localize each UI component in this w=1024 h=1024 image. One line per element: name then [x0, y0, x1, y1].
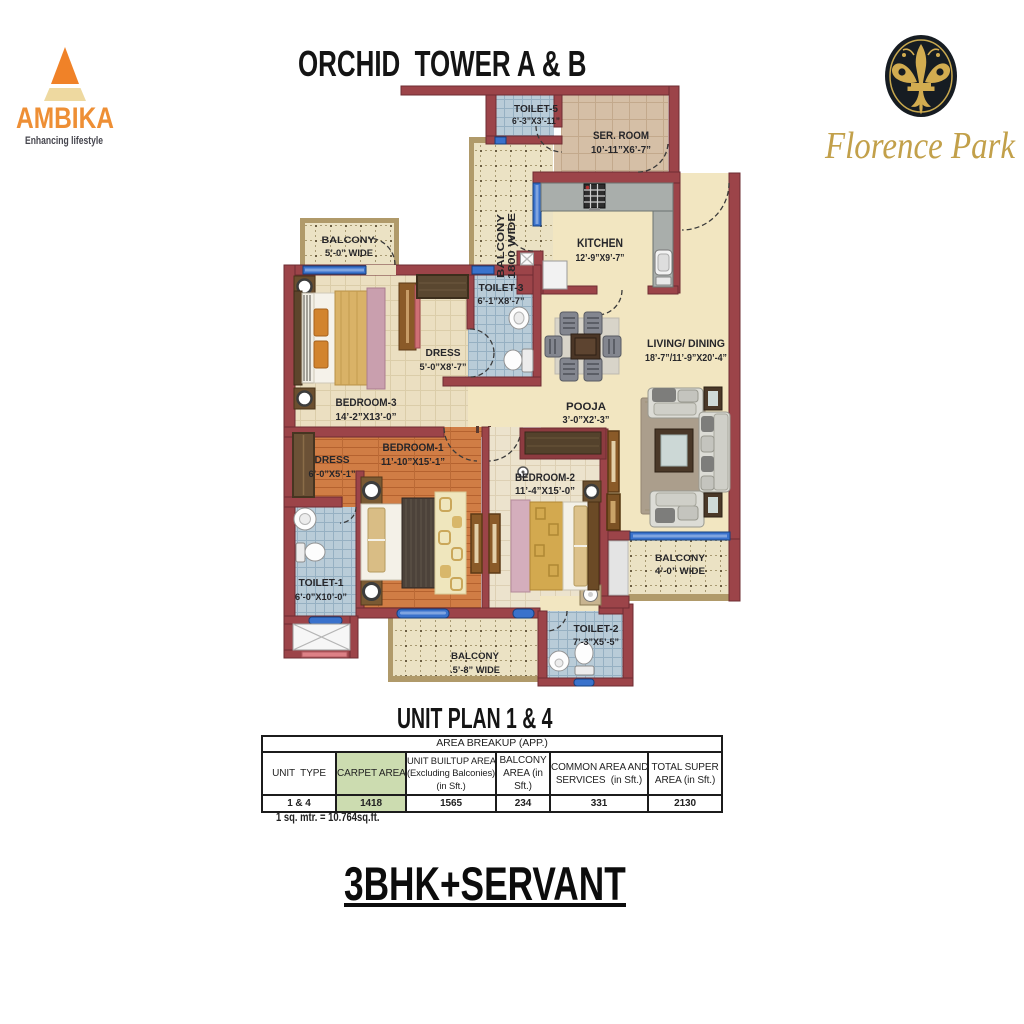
svg-text:KITCHEN: KITCHEN — [577, 238, 623, 250]
svg-text:5’-0”X8’-7”: 5’-0”X8’-7” — [420, 362, 467, 373]
svg-text:POOJA: POOJA — [566, 401, 606, 413]
svg-text:TOILET-5: TOILET-5 — [514, 104, 558, 115]
svg-text:BEDROOM-2: BEDROOM-2 — [515, 472, 575, 484]
svg-text:Florence Park: Florence Park — [824, 125, 1016, 167]
svg-text:SER. ROOM: SER. ROOM — [593, 130, 649, 142]
svg-text:6’-3”X3’-11”: 6’-3”X3’-11” — [512, 116, 560, 126]
svg-text:DRESS: DRESS — [426, 348, 461, 359]
svg-text:11’-10”X15’-1”: 11’-10”X15’-1” — [381, 456, 445, 468]
svg-text:14’-2”X13’-0”: 14’-2”X13’-0” — [336, 411, 397, 423]
svg-text:.5’-8” WIDE: .5’-8” WIDE — [450, 665, 500, 675]
svg-text:BALCONY.: BALCONY. — [322, 235, 377, 246]
svg-text:3’-0”X2’-3”: 3’-0”X2’-3” — [563, 414, 610, 426]
svg-text:LIVING/ DINING: LIVING/ DINING — [647, 338, 725, 350]
svg-text:BALCONY: BALCONY — [655, 553, 706, 564]
svg-text:TOILET-3: TOILET-3 — [479, 283, 524, 294]
svg-text:6’-1”X8’-7”: 6’-1”X8’-7” — [478, 296, 525, 307]
svg-text:BALCONY: BALCONY — [451, 651, 500, 662]
svg-text:AMBIKA: AMBIKA — [16, 102, 114, 135]
svg-text:12’-9”X9’-7”: 12’-9”X9’-7” — [576, 252, 625, 264]
svg-text:1800 WIDE: 1800 WIDE — [507, 213, 518, 279]
svg-text:5’-0” WIDE: 5’-0” WIDE — [325, 248, 373, 258]
svg-text:TOILET-2: TOILET-2 — [574, 624, 619, 635]
svg-text:4’-0” WIDE: 4’-0” WIDE — [655, 566, 705, 576]
svg-text:11’-4”X15’-0”: 11’-4”X15’-0” — [515, 485, 575, 497]
svg-text:7’-3”X5’-5”: 7’-3”X5’-5” — [573, 637, 619, 648]
svg-text:BALCONY: BALCONY — [496, 214, 507, 278]
svg-text:6’-0”X10’-0”: 6’-0”X10’-0” — [295, 592, 347, 603]
svg-text:10’-11”X6’-7”: 10’-11”X6’-7” — [591, 145, 651, 156]
svg-text:BEDROOM-3: BEDROOM-3 — [336, 397, 397, 409]
svg-text:DRESS: DRESS — [315, 455, 350, 466]
svg-text:BEDROOM-1: BEDROOM-1 — [383, 442, 444, 454]
svg-text:TOILET-1: TOILET-1 — [299, 578, 344, 589]
svg-text:6’-0”X5’-1”: 6’-0”X5’-1” — [309, 469, 356, 480]
svg-text:Enhancing lifestyle: Enhancing lifestyle — [25, 135, 103, 147]
svg-text:18’-7”/11’-9”X20’-4”: 18’-7”/11’-9”X20’-4” — [645, 352, 727, 364]
